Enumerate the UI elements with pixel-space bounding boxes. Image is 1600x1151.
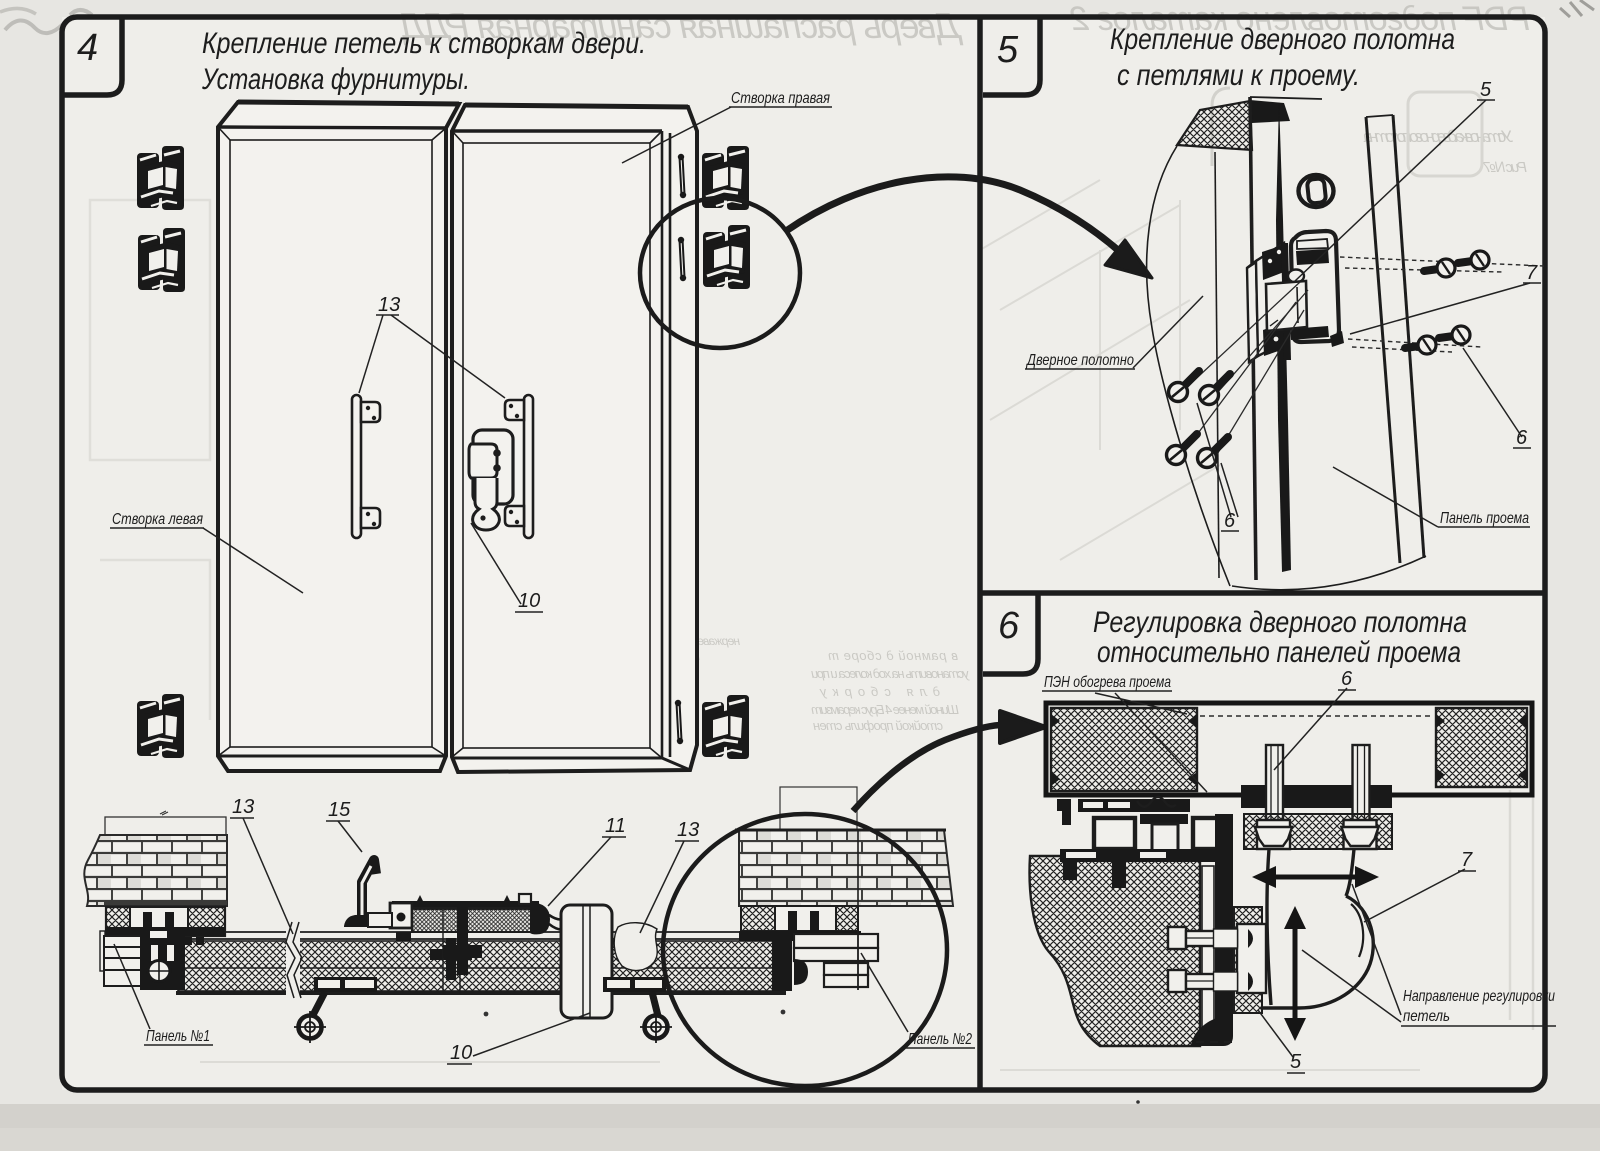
svg-text:Панель №2: Панель №2 bbox=[908, 1031, 972, 1048]
svg-text:6: 6 bbox=[1516, 427, 1528, 449]
svg-text:Створка левая: Створка левая bbox=[112, 511, 203, 528]
svg-text:относительно панелей проема: относительно панелей проема bbox=[1097, 636, 1461, 669]
svg-text:установить на ход колеса и при: установить на ход колеса и при bbox=[811, 666, 970, 681]
svg-text:13: 13 bbox=[232, 796, 254, 818]
svg-text:13: 13 bbox=[677, 819, 699, 841]
svg-text:с петлями к проему.: с петлями к проему. bbox=[1117, 59, 1360, 92]
svg-text:Установка фурнитуры.: Установка фурнитуры. bbox=[201, 63, 470, 96]
svg-text:петель: петель bbox=[1403, 1008, 1450, 1025]
svg-text:Крепление петель к створкам дв: Крепление петель к створкам двери. bbox=[202, 27, 646, 60]
svg-text:6: 6 bbox=[1341, 668, 1353, 690]
svg-text:Панель №1: Панель №1 bbox=[146, 1028, 210, 1045]
svg-text:10: 10 bbox=[518, 590, 540, 612]
svg-text:в рамной д сборе т: в рамной д сборе т bbox=[828, 648, 958, 663]
svg-text:13: 13 bbox=[378, 294, 400, 316]
svg-text:стойкой профиль стен: стойкой профиль стен bbox=[813, 718, 943, 733]
svg-text:7: 7 bbox=[1526, 262, 1538, 284]
svg-text:для сборку: для сборку bbox=[819, 684, 941, 699]
svg-text:ПЭН обогрева проема: ПЭН обогрева проема bbox=[1044, 674, 1171, 691]
svg-text:Створка правая: Створка правая bbox=[731, 90, 830, 107]
svg-text:11: 11 bbox=[605, 815, 626, 837]
svg-text:10: 10 bbox=[450, 1042, 472, 1064]
svg-text:7: 7 bbox=[1461, 849, 1473, 871]
svg-text:6: 6 bbox=[1224, 510, 1236, 532]
svg-text:15: 15 bbox=[328, 799, 351, 821]
svg-text:Регулировка дверного полотна: Регулировка дверного полотна bbox=[1093, 606, 1467, 639]
svg-text:5: 5 bbox=[1290, 1051, 1302, 1073]
svg-text:Дверное полотно: Дверное полотно bbox=[1025, 352, 1134, 369]
svg-text:5: 5 bbox=[997, 29, 1019, 71]
svg-text:Крепление дверного полотна: Крепление дверного полотна bbox=[1110, 23, 1455, 56]
svg-text:Панель проема: Панель проема bbox=[1440, 510, 1529, 527]
svg-text:Шиной менее 4 Брус керамзит: Шиной менее 4 Брус керамзит bbox=[811, 702, 959, 717]
svg-text:Направление регулировки: Направление регулировки bbox=[1403, 988, 1555, 1005]
svg-text:6: 6 bbox=[998, 605, 1020, 647]
svg-text:4: 4 bbox=[77, 27, 98, 69]
svg-text:Рис №7: Рис №7 bbox=[1482, 159, 1527, 176]
svg-text:5: 5 bbox=[1480, 79, 1492, 101]
svg-text:Установка дверного полотна: Установка дверного полотна bbox=[1363, 127, 1514, 146]
